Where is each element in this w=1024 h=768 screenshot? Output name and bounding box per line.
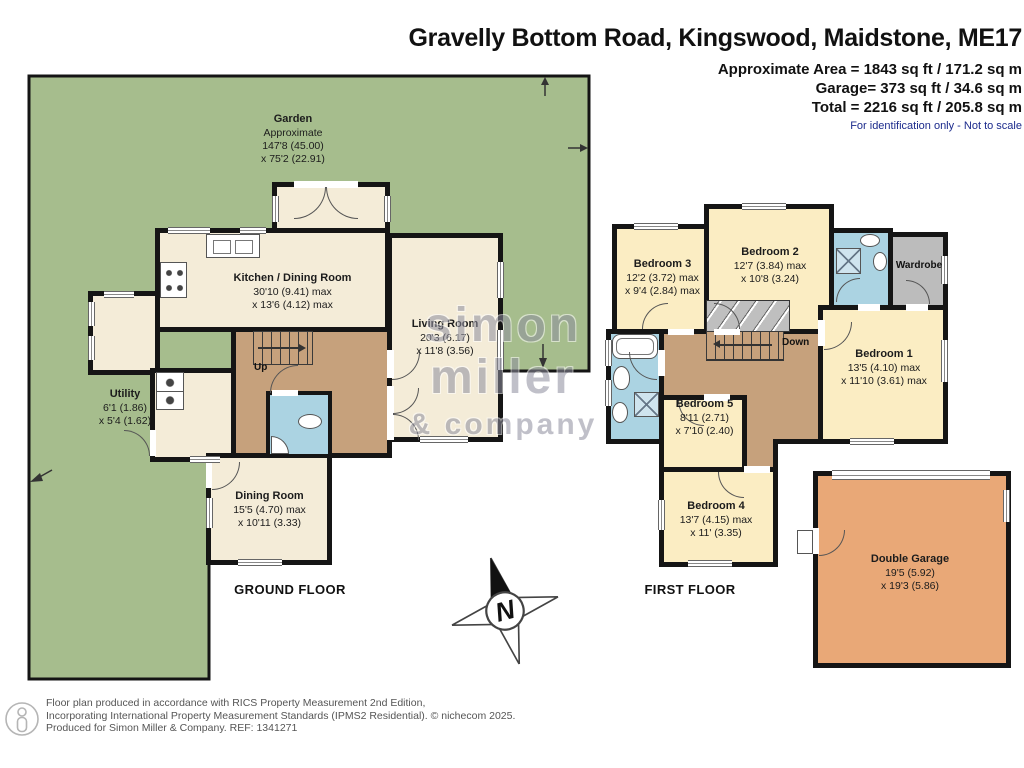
window <box>168 227 210 234</box>
room-dim: 13'5 (4.10) max <box>828 362 940 375</box>
window <box>497 330 504 370</box>
room-dim: x 13'6 (4.12) max <box>210 299 375 312</box>
kitchen-label: Kitchen / Dining Room 30'10 (9.41) max x… <box>210 272 375 312</box>
room-dim: x 11'10 (3.61) max <box>828 375 940 388</box>
approximate-area: Approximate Area = 1843 sq ft / 171.2 sq… <box>409 60 1022 79</box>
garage-label: Double Garage 19'5 (5.92) x 19'3 (5.86) <box>850 553 970 593</box>
room-name: Utility <box>70 388 180 402</box>
ground-floor-label: GROUND FLOOR <box>215 582 365 597</box>
dining-label: Dining Room 15'5 (4.70) max x 10'11 (3.3… <box>212 490 327 530</box>
room-dim: 30'10 (9.41) max <box>210 286 375 299</box>
room-dim: x 19'3 (5.86) <box>850 580 970 593</box>
bedroom3-label: Bedroom 3 12'2 (3.72) max x 9'4 (2.84) m… <box>610 258 715 298</box>
landing-extension <box>742 395 823 444</box>
room-kitchen-bay <box>88 291 160 375</box>
window <box>742 203 786 210</box>
window <box>688 560 732 567</box>
header: Gravelly Bottom Road, Kingswood, Maidsto… <box>409 24 1022 132</box>
stairs-down-arrow <box>713 340 720 348</box>
window <box>605 340 612 366</box>
footer-line-2: Incorporating International Property Mea… <box>46 710 515 723</box>
person-badge-icon <box>4 699 40 739</box>
room-dim: 147'8 (45.00) <box>223 140 363 153</box>
bedroom1-label: Bedroom 1 13'5 (4.10) max x 11'10 (3.61)… <box>828 348 940 388</box>
stairs-up-arrow <box>299 344 306 352</box>
window <box>104 291 134 298</box>
ensuite-shower-icon <box>836 248 861 274</box>
bedroom2-label: Bedroom 2 12'7 (3.84) max x 10'8 (3.24) <box>715 246 825 286</box>
room-name: Bedroom 1 <box>828 348 940 362</box>
room-name: Bedroom 5 <box>662 398 747 412</box>
window <box>240 227 266 234</box>
window <box>88 302 95 326</box>
window <box>497 262 504 298</box>
room-dim: 13'7 (4.15) max <box>660 514 772 527</box>
room-name: Bedroom 4 <box>660 500 772 514</box>
room-dim: x 7'10 (2.40) <box>662 425 747 438</box>
page-title: Gravelly Bottom Road, Kingswood, Maidsto… <box>409 24 1022 53</box>
room-name: Dining Room <box>212 490 327 504</box>
wc-toilet-icon <box>298 414 322 429</box>
living-label: Living Room 20'3 (6.17) x 11'8 (3.56) <box>393 318 497 358</box>
stairs-down-label: Down <box>782 337 809 348</box>
footer: Floor plan produced in accordance with R… <box>2 697 515 735</box>
bathroom-shower-icon <box>634 392 659 417</box>
floorplan-page: Gravelly Bottom Road, Kingswood, Maidsto… <box>0 0 1024 768</box>
footer-line-3: Produced for Simon Miller & Company. REF… <box>46 722 515 735</box>
window <box>272 196 279 222</box>
ensuite-sink-icon <box>860 234 880 247</box>
room-dim: 12'2 (3.72) max <box>610 272 715 285</box>
footer-line-1: Floor plan produced in accordance with R… <box>46 697 515 710</box>
room-dim: x 5'4 (1.62) <box>70 415 180 428</box>
wardrobe-label: Wardrobe <box>893 260 945 271</box>
room-dim: x 9'4 (2.84) max <box>610 285 715 298</box>
ensuite-toilet-icon <box>873 252 887 271</box>
window <box>238 559 282 566</box>
room-dim: x 10'8 (3.24) <box>715 273 825 286</box>
window <box>384 196 391 222</box>
bedroom5-label: Bedroom 5 8'11 (2.71) x 7'10 (2.40) <box>662 398 747 438</box>
room-name: Living Room <box>393 318 497 332</box>
room-dim: x 10'11 (3.33) <box>212 517 327 530</box>
window <box>941 340 948 382</box>
room-dim: 6'1 (1.86) <box>70 402 180 415</box>
garage-area: Garage= 373 sq ft / 34.6 sq m <box>409 79 1022 98</box>
bedroom4-label: Bedroom 4 13'7 (4.15) max x 11' (3.35) <box>660 500 772 540</box>
room-name: Bedroom 2 <box>715 246 825 260</box>
stairs-up-label: Up <box>254 362 267 373</box>
window <box>1003 490 1010 522</box>
garage-door <box>832 470 990 480</box>
hob-icon <box>160 262 187 298</box>
room-dim: 12'7 (3.84) max <box>715 260 825 273</box>
room-dim: 19'5 (5.92) <box>850 567 970 580</box>
room-name: Garden <box>223 113 363 127</box>
room-dim: 20'3 (6.17) <box>393 332 497 345</box>
room-name: Kitchen / Dining Room <box>210 272 375 286</box>
room-dim: 8'11 (2.71) <box>662 412 747 425</box>
total-area: Total = 2216 sq ft / 205.8 sq m <box>409 98 1022 117</box>
room-dim: 15'5 (4.70) max <box>212 504 327 517</box>
bathroom-sink-icon <box>613 366 630 390</box>
bathroom-toilet-icon <box>612 402 628 423</box>
window <box>420 436 468 443</box>
room-dim: Approximate <box>223 127 363 140</box>
garden-label: Garden Approximate 147'8 (45.00) x 75'2 … <box>223 113 363 166</box>
room-dim: x 11'8 (3.56) <box>393 345 497 358</box>
room-dim: x 11' (3.35) <box>660 527 772 540</box>
room-name: Double Garage <box>850 553 970 567</box>
room-name: Bedroom 3 <box>610 258 715 272</box>
window <box>190 456 220 463</box>
kitchen-sink-icon <box>206 234 260 258</box>
window <box>88 336 95 360</box>
room-dim: x 75'2 (22.91) <box>223 153 363 166</box>
utility-label: Utility 6'1 (1.86) x 5'4 (1.62) <box>70 388 180 428</box>
window <box>850 438 894 445</box>
first-floor-label: FIRST FLOOR <box>620 582 760 597</box>
wall-segment <box>773 439 823 444</box>
window <box>634 223 678 230</box>
garage-side-door <box>797 530 813 554</box>
window <box>605 380 612 406</box>
disclaimer-note: For identification only - Not to scale <box>409 120 1022 132</box>
